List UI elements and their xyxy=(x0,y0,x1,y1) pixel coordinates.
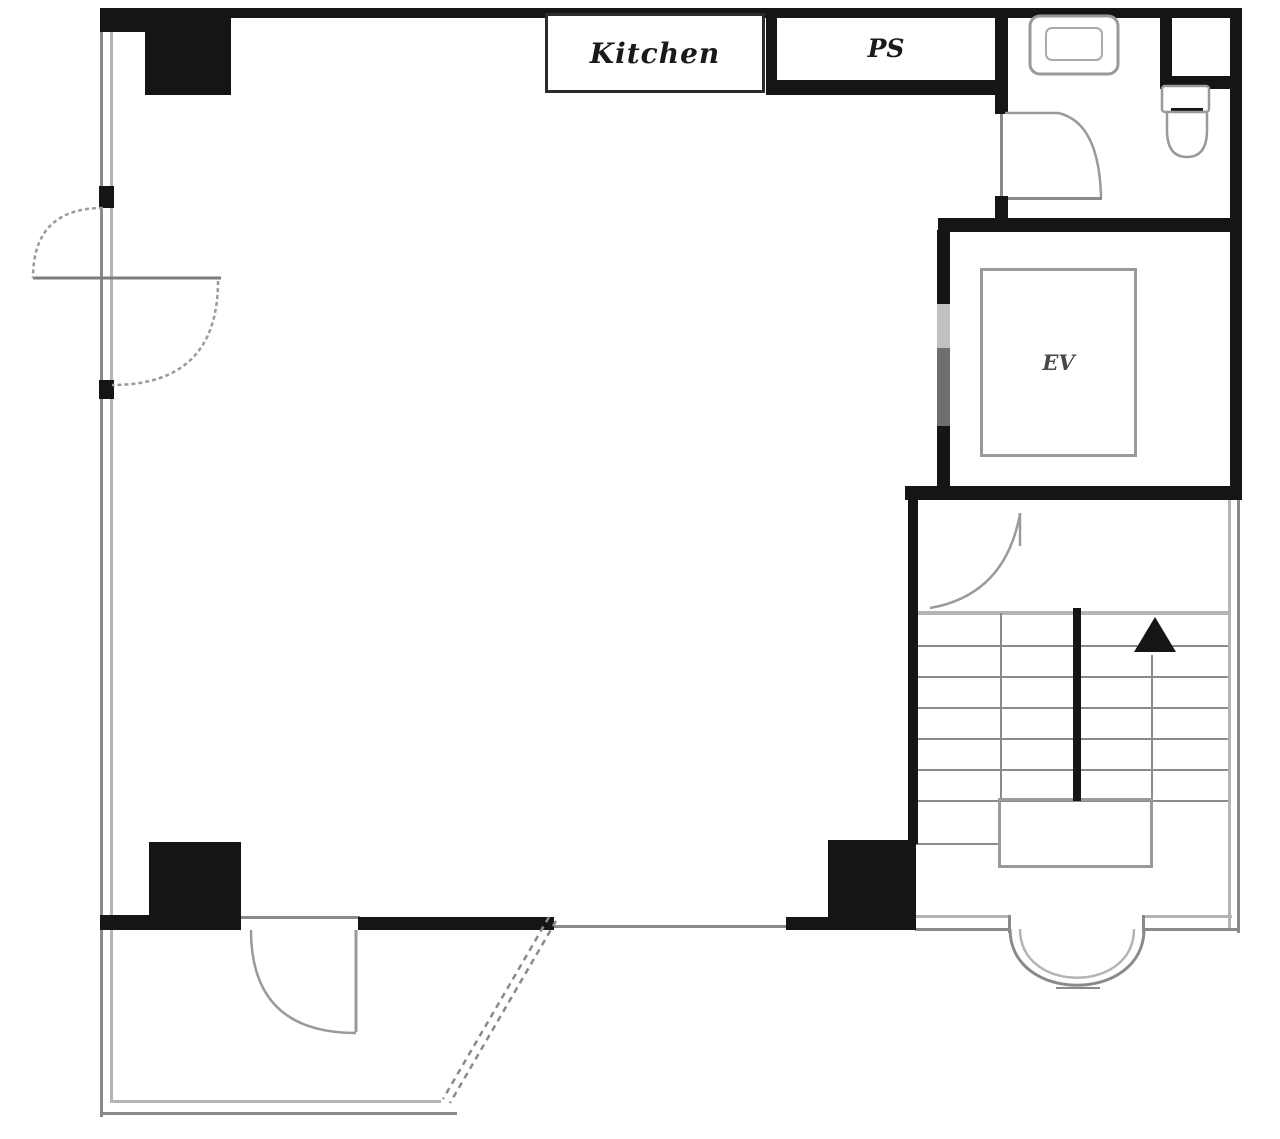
sink-basin-icon xyxy=(1046,28,1102,60)
stair-up-arrow-icon xyxy=(1134,617,1176,652)
left-door-arc-upper xyxy=(33,208,103,278)
porch-diagonal-inner xyxy=(443,917,549,1099)
porch-diagonal-outer xyxy=(450,921,556,1103)
entrance-arch-inner xyxy=(1020,929,1134,978)
toilet-door-arc xyxy=(1005,113,1101,197)
left-door-arc-lower xyxy=(112,281,218,385)
stair-door-arc xyxy=(930,514,1020,608)
plan-details-layer xyxy=(0,0,1280,1139)
floor-plan: Kitchen PS EV xyxy=(0,0,1280,1139)
toilet-icon xyxy=(1167,112,1207,157)
entrance-door-arc xyxy=(251,930,356,1033)
